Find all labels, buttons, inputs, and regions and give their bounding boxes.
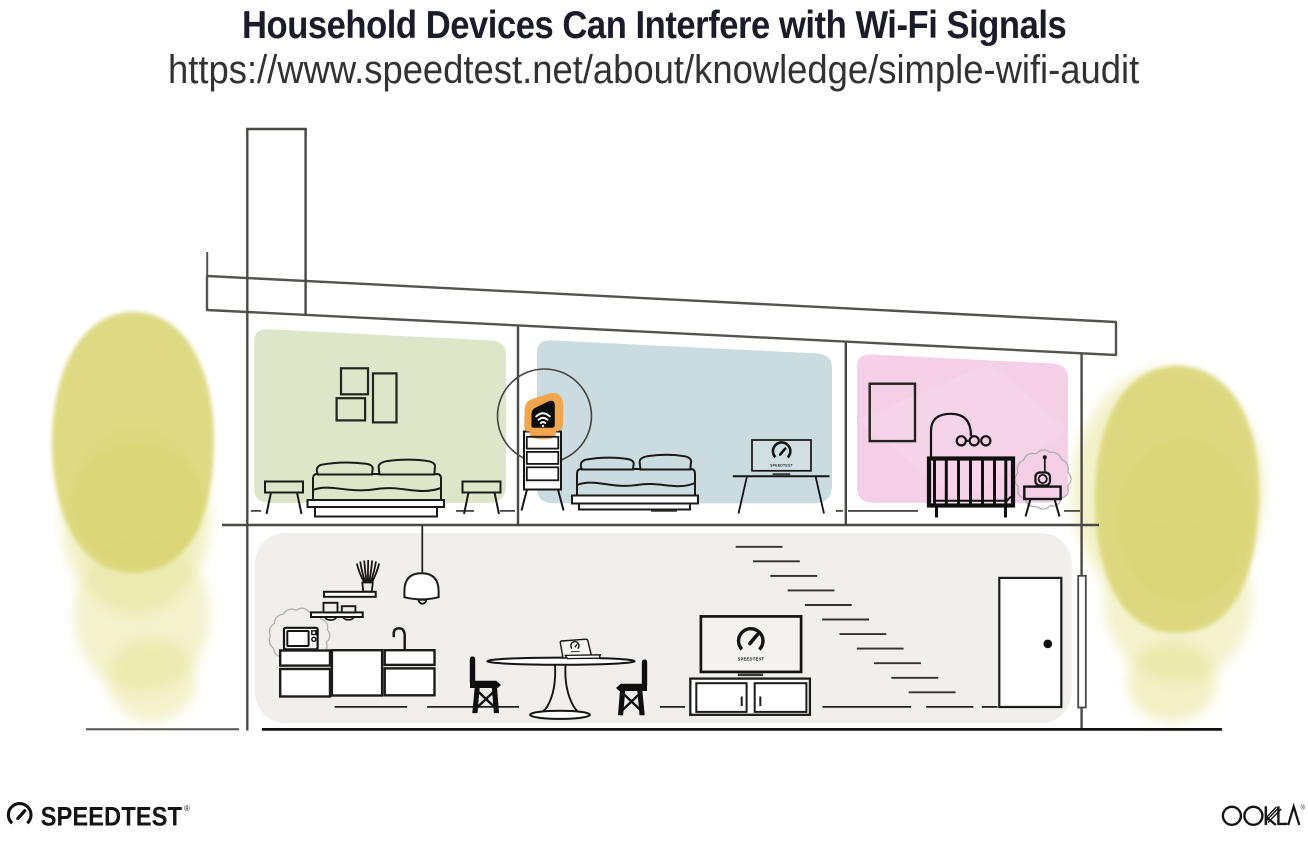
svg-text:®: ®: [1301, 805, 1306, 812]
svg-text:SPEEDTEST: SPEEDTEST: [770, 463, 793, 467]
svg-text:SPEEDTEST: SPEEDTEST: [738, 656, 765, 661]
svg-text:SPEEDTEST: SPEEDTEST: [41, 802, 182, 832]
svg-text:®: ®: [184, 804, 190, 813]
